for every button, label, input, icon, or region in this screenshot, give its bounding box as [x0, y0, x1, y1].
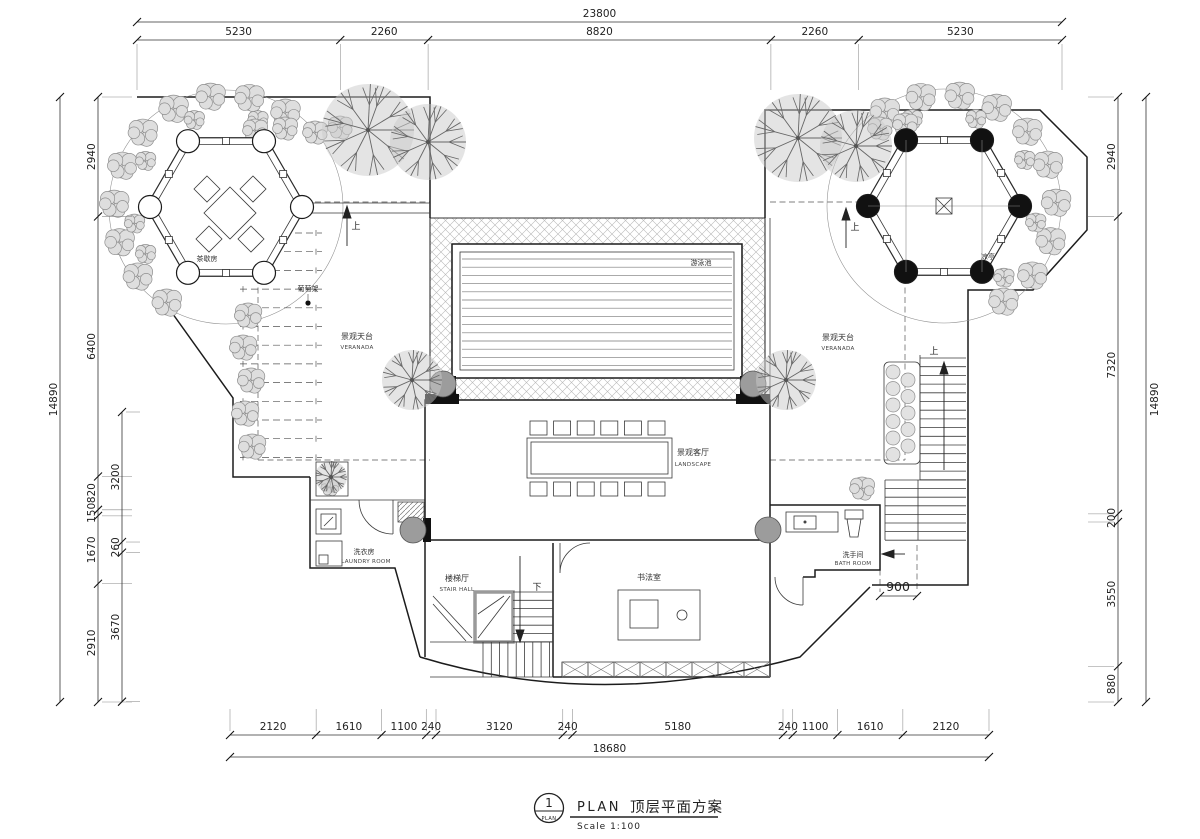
veranda-left-label-cn: 景观天台	[341, 331, 373, 341]
down-label-stair-hall: 下	[532, 583, 541, 593]
detail-number: 1	[545, 796, 553, 810]
dim-text: 18680	[593, 743, 626, 755]
dim-text: 2260	[801, 26, 828, 38]
dim-text: 260	[110, 537, 122, 557]
dim-text: 2940	[86, 143, 98, 170]
dim-text: 3670	[110, 614, 122, 641]
laundry-label-cn: 洗衣房	[354, 547, 375, 556]
sheet-title-en: PLAN	[577, 800, 621, 815]
dim-text: 150	[86, 503, 98, 523]
grape-trellis-leader-dot	[305, 300, 310, 305]
dim-text: 820	[86, 483, 98, 503]
dim-text: 6400	[86, 333, 98, 360]
dim-text: 3550	[1106, 581, 1118, 608]
dim-text: 3120	[486, 721, 513, 733]
up-label-right-terrace: 上	[850, 222, 859, 233]
dim-text: 2910	[86, 630, 98, 657]
detail-marker-label: PLAN	[541, 816, 556, 822]
dim-text: 5230	[947, 26, 974, 38]
pool-label: 游泳池	[691, 258, 712, 267]
dim-text: 240	[558, 721, 578, 733]
dim-text: 2120	[933, 721, 960, 733]
plan-canvas: 茶歇房 凉亭 葡萄架 景观天台 VERANADA 景观天台 VERANADA 游…	[0, 0, 1200, 839]
bath-label-en: BATH ROOM	[835, 561, 872, 567]
dim-text: 1100	[391, 721, 418, 733]
dim-text: 3200	[110, 464, 122, 491]
grape-trellis-label: 葡萄架	[298, 284, 319, 293]
up-label-left-terrace: 上	[351, 221, 360, 232]
dim-text: 880	[1106, 674, 1118, 694]
dim-text: 200	[1106, 508, 1118, 528]
calligraphy-label: 书法室	[637, 572, 661, 582]
dim-text: 5230	[225, 26, 252, 38]
laundry-label-en: LAUNDRY ROOM	[341, 559, 391, 565]
dim-text: 1100	[802, 721, 829, 733]
sheet-title-cn: 顶层平面方案	[630, 798, 723, 816]
veranda-right-label-cn: 景观天台	[822, 332, 854, 342]
living-label-cn: 景观客厅	[677, 447, 709, 457]
up-label-right-stair: 上	[929, 346, 938, 357]
dim-text: 2940	[1106, 143, 1118, 170]
sheet-scale: Scale 1:100	[577, 822, 641, 832]
floor-plan-sheet: 茶歇房 凉亭 葡萄架 景观天台 VERANADA 景观天台 VERANADA 游…	[0, 0, 1200, 839]
dim-text: 2120	[260, 721, 287, 733]
dim-text: 1610	[857, 721, 884, 733]
dim-text: 240	[778, 721, 798, 733]
dim-text: 5180	[664, 721, 691, 733]
pavilion-label: 凉亭	[981, 252, 995, 261]
stair-hall-label-en: STAIR HALL	[440, 587, 476, 593]
stair-hall-label-cn: 楼梯厅	[445, 573, 469, 583]
dim-text: 8820	[586, 26, 613, 38]
bath-label-cn: 洗手间	[843, 550, 864, 559]
living-label-en: LANDSCAPE	[675, 462, 712, 468]
dim-text: 14890	[1149, 383, 1161, 416]
dim-text: 14890	[48, 383, 60, 416]
dim-text: 7320	[1106, 352, 1118, 379]
dim-text: 1670	[86, 536, 98, 563]
veranda-right-label-en: VERANADA	[821, 346, 854, 352]
tea-room-label: 茶歇房	[197, 254, 218, 263]
veranda-left-label-en: VERANADA	[340, 345, 373, 351]
dim-text: 240	[421, 721, 441, 733]
dim-text: 1610	[335, 721, 362, 733]
dim-text: 2260	[371, 26, 398, 38]
dim-text: 23800	[583, 8, 616, 20]
stair-width-dim-text: 900	[886, 579, 910, 594]
